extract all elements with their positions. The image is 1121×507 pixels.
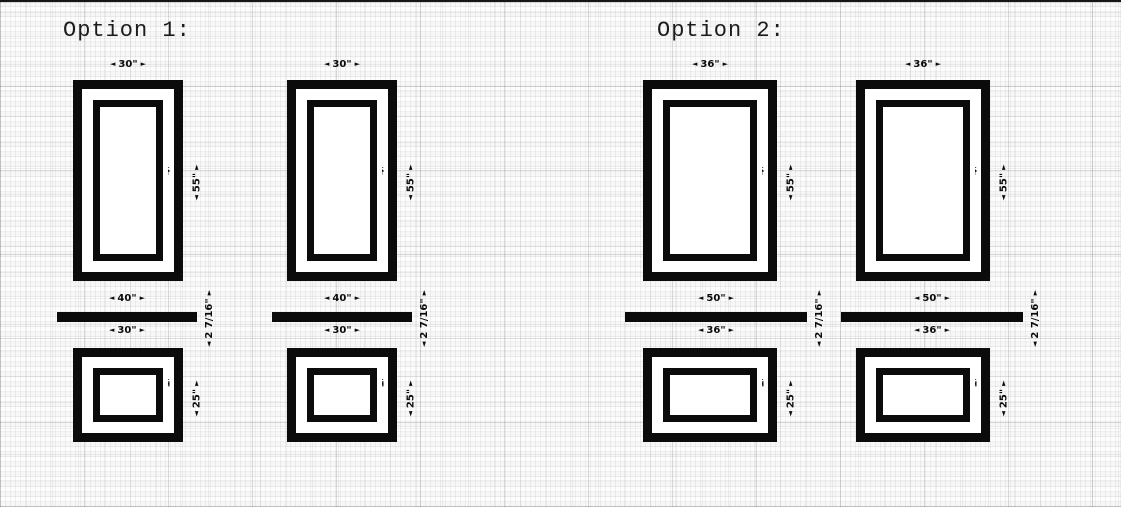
arrow-up-icon: ► [1001, 164, 1008, 169]
frame-column: ◄ 36" ► 26" 45" ◄ 55" ► ◄ 50" ► [0, 0, 1121, 507]
shelf-bar [841, 312, 1023, 322]
dimension-value: 45" [975, 170, 980, 176]
drawing-canvas: Option 1: Option 2: ◄ 30" ► 20" 45" ◄ 55… [0, 0, 1121, 507]
dimension-value: 50" [922, 293, 941, 304]
arrow-left-icon: ◄ [914, 295, 919, 302]
arrow-left-icon: ◄ [914, 327, 919, 334]
tall-frame: 26" 45" [856, 80, 990, 281]
arrow-down-icon: ◄ [1001, 195, 1008, 200]
dimension-value: 36" [913, 59, 932, 70]
frame-inner-border [876, 368, 970, 422]
short-frame-height-dimension: ◄ 25" ► [997, 374, 1011, 422]
dimension-value: 36" [922, 325, 941, 336]
arrow-down-icon: ◄ [1001, 411, 1008, 416]
arrow-right-icon: ► [945, 327, 950, 334]
dimension-value: 25" [999, 388, 1010, 407]
dimension-value: 26" [913, 357, 932, 361]
arrow-up-icon: ► [1032, 290, 1039, 295]
arrow-right-icon: ► [936, 61, 941, 68]
arrow-left-icon: ◄ [905, 61, 910, 68]
shelf-inner-length-dimension: ◄ 36" ► [841, 324, 1023, 337]
tall-frame-height-dimension: ◄ 55" ► [997, 160, 1011, 204]
clipped-inner-height-label: 15" [975, 379, 981, 423]
arrow-right-icon: ► [945, 295, 950, 302]
dimension-value: 26" [913, 89, 932, 93]
clipped-inner-width-label: 26" [865, 89, 981, 93]
short-frame: 26" 15" [856, 348, 990, 442]
shelf-length-dimension: ◄ 50" ► [841, 292, 1023, 305]
frame-inner-border [876, 100, 970, 261]
dimension-value: 15" [975, 382, 980, 388]
dimension-value: 2 7/16" [1030, 298, 1041, 338]
clipped-inner-height-label: 45" [975, 167, 981, 215]
shelf-thickness-dimension: ◄ 2 7/16" ► [1028, 287, 1042, 349]
tall-frame-width-dimension: ◄ 36" ► [856, 58, 990, 71]
arrow-down-icon: ◄ [1032, 341, 1039, 346]
arrow-up-icon: ► [1001, 380, 1008, 385]
clipped-inner-width-label: 26" [865, 357, 981, 361]
dimension-value: 55" [999, 172, 1010, 191]
